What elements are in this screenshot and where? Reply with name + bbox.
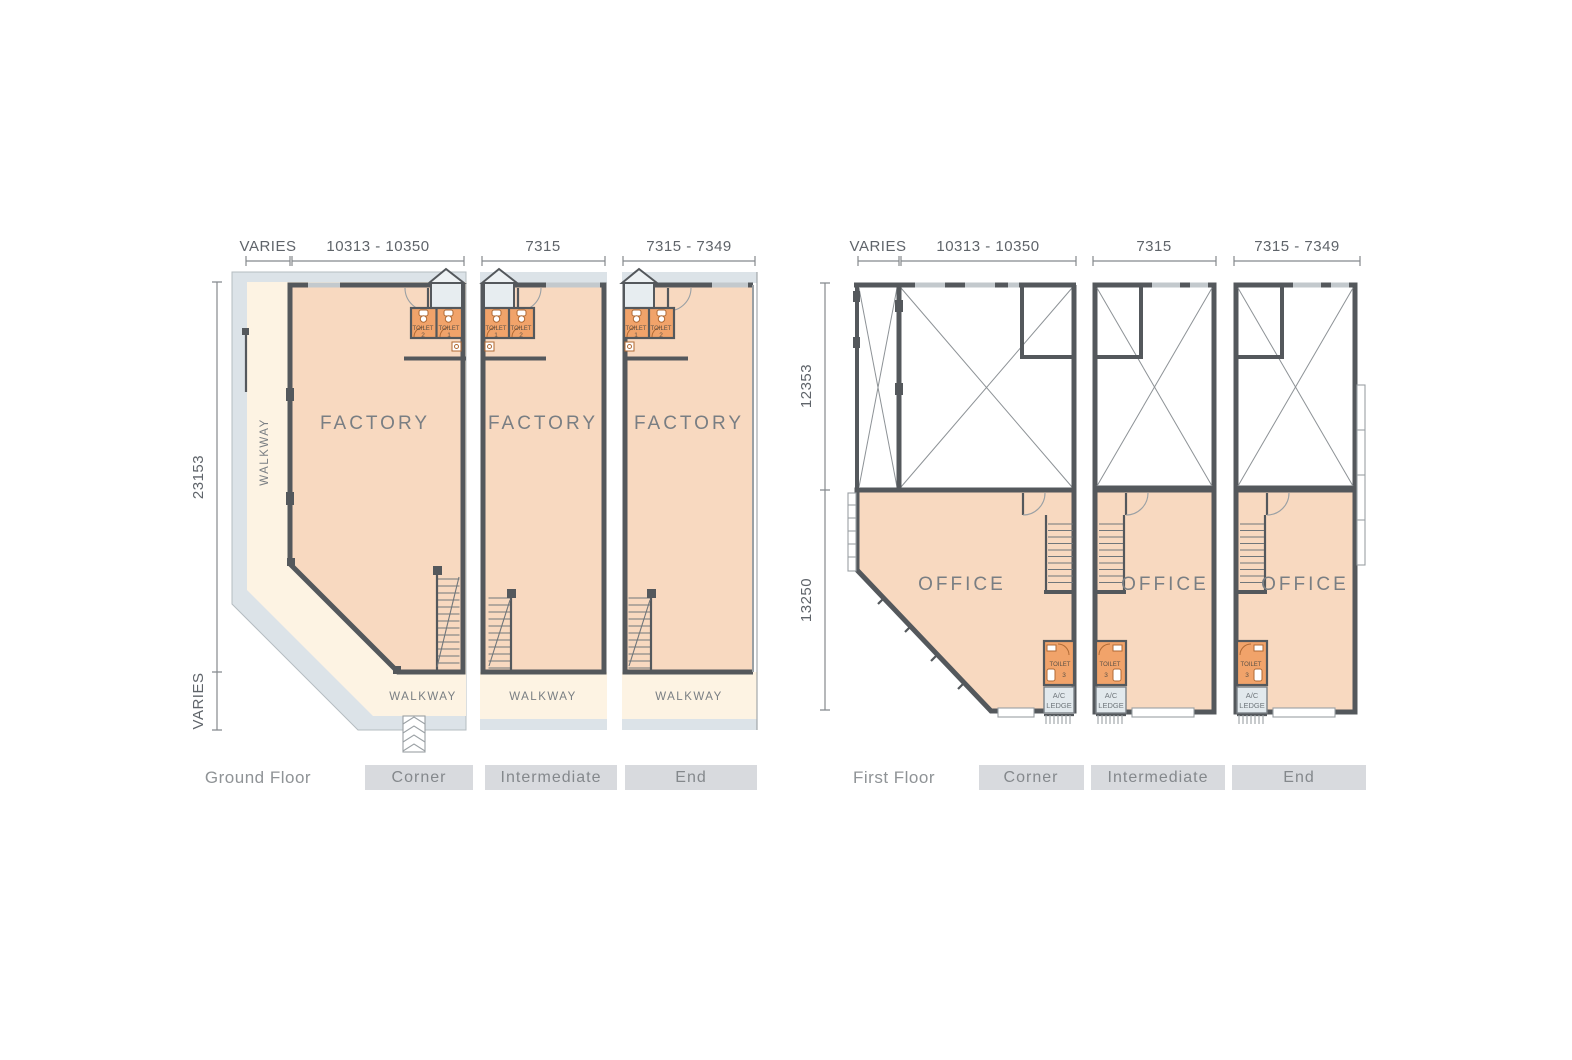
dimension-label: VARIES bbox=[190, 673, 207, 730]
legend-row: Ground Floor Corner Intermediate End Fir… bbox=[205, 765, 1366, 790]
walkway-label: WALKWAY bbox=[655, 691, 723, 703]
office-area bbox=[857, 490, 1074, 711]
factory-area bbox=[483, 285, 604, 672]
entrance-vestibule bbox=[624, 283, 654, 308]
ff-end-ac-ledge: A/C LEDGE bbox=[1237, 687, 1267, 724]
dimension-label: 12353 bbox=[798, 364, 815, 408]
floorplan-svg: VARIES 10313 - 10350 7315 7315 - 7349 23… bbox=[0, 0, 1572, 1060]
entrance-arrow bbox=[403, 716, 425, 752]
floorplan-canvas: VARIES 10313 - 10350 7315 7315 - 7349 23… bbox=[0, 0, 1572, 1060]
dimension-bracket bbox=[858, 256, 899, 266]
ac-ledge-label: LEDGE bbox=[1098, 701, 1123, 710]
ff-corner-ac-ledge: A/C LEDGE bbox=[1044, 687, 1074, 724]
unit-type-label: Intermediate bbox=[501, 769, 602, 786]
ff-top-dimensions: VARIES 10313 - 10350 7315 7315 - 7349 bbox=[850, 238, 1360, 266]
toilet-number: 2 bbox=[519, 332, 523, 339]
dimension-label: 13250 bbox=[798, 578, 815, 622]
ff-unit-end: TOILET 3 A/C LEDGE OFFICE bbox=[1234, 285, 1365, 724]
dimension-label: VARIES bbox=[850, 238, 907, 255]
dimension-bracket bbox=[901, 256, 1076, 266]
window-recess bbox=[998, 708, 1034, 717]
walkway-label: WALKWAY bbox=[259, 418, 271, 486]
ff-unit-intermediate: TOILET 3 A/C LEDGE OFFICE bbox=[1093, 285, 1214, 724]
unit-type-label: Corner bbox=[1004, 769, 1059, 786]
site-boundary-band bbox=[480, 719, 607, 730]
room-label: OFFICE bbox=[1261, 574, 1349, 595]
ac-ledge-label: LEDGE bbox=[1046, 701, 1071, 710]
toilet-label: TOILET bbox=[1241, 662, 1262, 668]
toilet-label: TOILET bbox=[1100, 662, 1121, 668]
room-label: FACTORY bbox=[320, 413, 430, 434]
first-floor-plan: VARIES 10313 - 10350 7315 7315 - 7349 12… bbox=[798, 238, 1365, 724]
gf-unit-corner: TOILET 2 TOILET 1 bbox=[232, 269, 466, 752]
dimension-label: 10313 - 10350 bbox=[326, 238, 429, 255]
toilet-number: 1 bbox=[447, 332, 451, 339]
factory-area bbox=[625, 285, 753, 672]
toilet-number: 2 bbox=[421, 332, 425, 339]
dimension-bracket bbox=[246, 256, 290, 266]
ff-unit-corner: TOILET 3 A/C LEDGE OFFICE bbox=[848, 283, 1076, 724]
toilet-number: 2 bbox=[659, 332, 663, 339]
dimension-bracket bbox=[1234, 256, 1360, 266]
gf-unit-intermediate: TOILET 1 TOILET 2 bbox=[480, 269, 607, 730]
dimension-label: 7315 bbox=[525, 238, 560, 255]
room-label: FACTORY bbox=[634, 413, 744, 434]
floor-title: First Floor bbox=[853, 768, 935, 787]
dimension-label: 7315 - 7349 bbox=[646, 238, 732, 255]
toilet-label: TOILET bbox=[1050, 662, 1071, 668]
entrance-vestibule bbox=[431, 283, 462, 308]
walkway-label: WALKWAY bbox=[389, 691, 457, 703]
toilet-number: 3 bbox=[1104, 672, 1108, 679]
window-recess bbox=[1132, 708, 1194, 717]
dimension-label: 7315 - 7349 bbox=[1254, 238, 1340, 255]
gate-post bbox=[242, 328, 249, 335]
walkway-label: WALKWAY bbox=[509, 691, 577, 703]
gf-top-dimensions: VARIES 10313 - 10350 7315 7315 - 7349 bbox=[240, 238, 755, 266]
toilet-number: 3 bbox=[1245, 672, 1249, 679]
unit-type-label: End bbox=[675, 769, 706, 786]
window-recess bbox=[1273, 708, 1335, 717]
toilet-number: 1 bbox=[494, 332, 498, 339]
void-area bbox=[855, 283, 1076, 490]
ff-int-ac-ledge: A/C LEDGE bbox=[1096, 687, 1126, 724]
room-label: FACTORY bbox=[488, 413, 598, 434]
entrance-vestibule bbox=[484, 283, 514, 308]
wc-fixture bbox=[444, 310, 453, 316]
ground-floor-plan: VARIES 10313 - 10350 7315 7315 - 7349 23… bbox=[190, 238, 757, 752]
dimension-label: 7315 bbox=[1136, 238, 1171, 255]
dimension-label: VARIES bbox=[240, 238, 297, 255]
dimension-label: 23153 bbox=[190, 455, 207, 499]
column-stud bbox=[286, 388, 294, 401]
ac-ledge-label: A/C bbox=[1105, 691, 1118, 700]
gf-left-dimensions: 23153 VARIES bbox=[190, 282, 222, 730]
room-label: OFFICE bbox=[1121, 574, 1209, 595]
wc-fixture bbox=[419, 310, 428, 316]
ac-ledge-label: A/C bbox=[1053, 691, 1066, 700]
ff-int-toilet: TOILET 3 bbox=[1096, 641, 1126, 685]
dimension-bracket bbox=[1093, 256, 1216, 266]
column-stud bbox=[287, 558, 295, 566]
dimension-bracket bbox=[820, 283, 830, 710]
unit-type-label: End bbox=[1283, 769, 1314, 786]
ac-ledge-label: LEDGE bbox=[1239, 701, 1264, 710]
unit-type-label: Corner bbox=[392, 769, 447, 786]
column-stud bbox=[286, 492, 294, 505]
toilet-number: 1 bbox=[634, 332, 638, 339]
side-ledge bbox=[848, 493, 856, 571]
column-stud bbox=[393, 666, 401, 674]
side-ledge bbox=[1357, 385, 1365, 565]
ff-end-toilet: TOILET 3 bbox=[1237, 641, 1267, 685]
room-label: OFFICE bbox=[918, 574, 1006, 595]
ff-left-dimensions: 12353 13250 bbox=[798, 283, 830, 710]
unit-type-label: Intermediate bbox=[1108, 769, 1209, 786]
dimension-bracket bbox=[623, 256, 755, 266]
toilet-number: 3 bbox=[1062, 672, 1066, 679]
ff-corner-toilet: TOILET 3 bbox=[1044, 641, 1074, 685]
dimension-label: 10313 - 10350 bbox=[936, 238, 1039, 255]
site-boundary-band bbox=[622, 719, 757, 730]
dimension-bracket bbox=[482, 256, 605, 266]
ac-ledge-label: A/C bbox=[1246, 691, 1259, 700]
gf-unit-end: TOILET 1 TOILET 2 bbox=[622, 269, 757, 730]
dimension-bracket bbox=[212, 282, 222, 730]
floor-title: Ground Floor bbox=[205, 768, 311, 787]
dimension-bracket bbox=[292, 256, 464, 266]
